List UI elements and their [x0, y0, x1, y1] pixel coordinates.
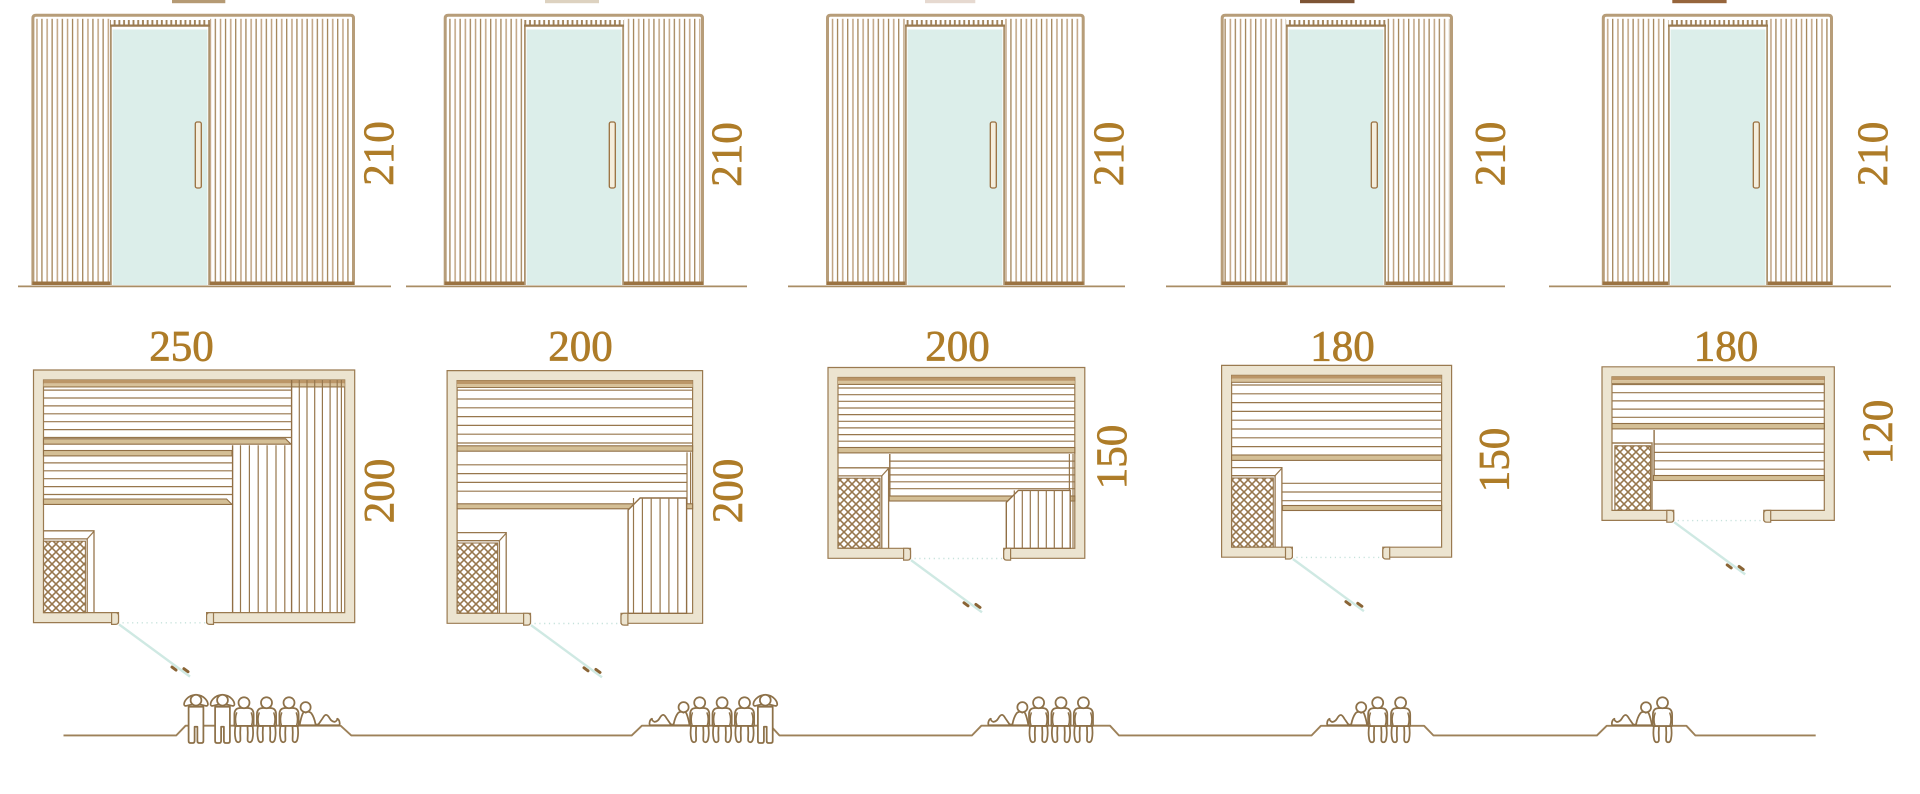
svg-text:200: 200	[548, 324, 613, 371]
svg-text:210: 210	[356, 121, 403, 186]
svg-text:180: 180	[1694, 324, 1759, 371]
svg-text:180: 180	[1310, 324, 1375, 371]
svg-text:210: 210	[1467, 122, 1514, 187]
svg-text:120: 120	[1855, 400, 1902, 465]
svg-text:210: 210	[1850, 122, 1897, 187]
svg-text:200: 200	[357, 459, 404, 524]
svg-text:250: 250	[149, 324, 214, 371]
svg-text:200: 200	[705, 459, 752, 524]
svg-text:210: 210	[704, 122, 751, 187]
svg-text:200: 200	[925, 324, 990, 371]
svg-text:150: 150	[1089, 425, 1136, 490]
svg-text:210: 210	[1086, 122, 1133, 187]
svg-text:150: 150	[1472, 428, 1519, 493]
